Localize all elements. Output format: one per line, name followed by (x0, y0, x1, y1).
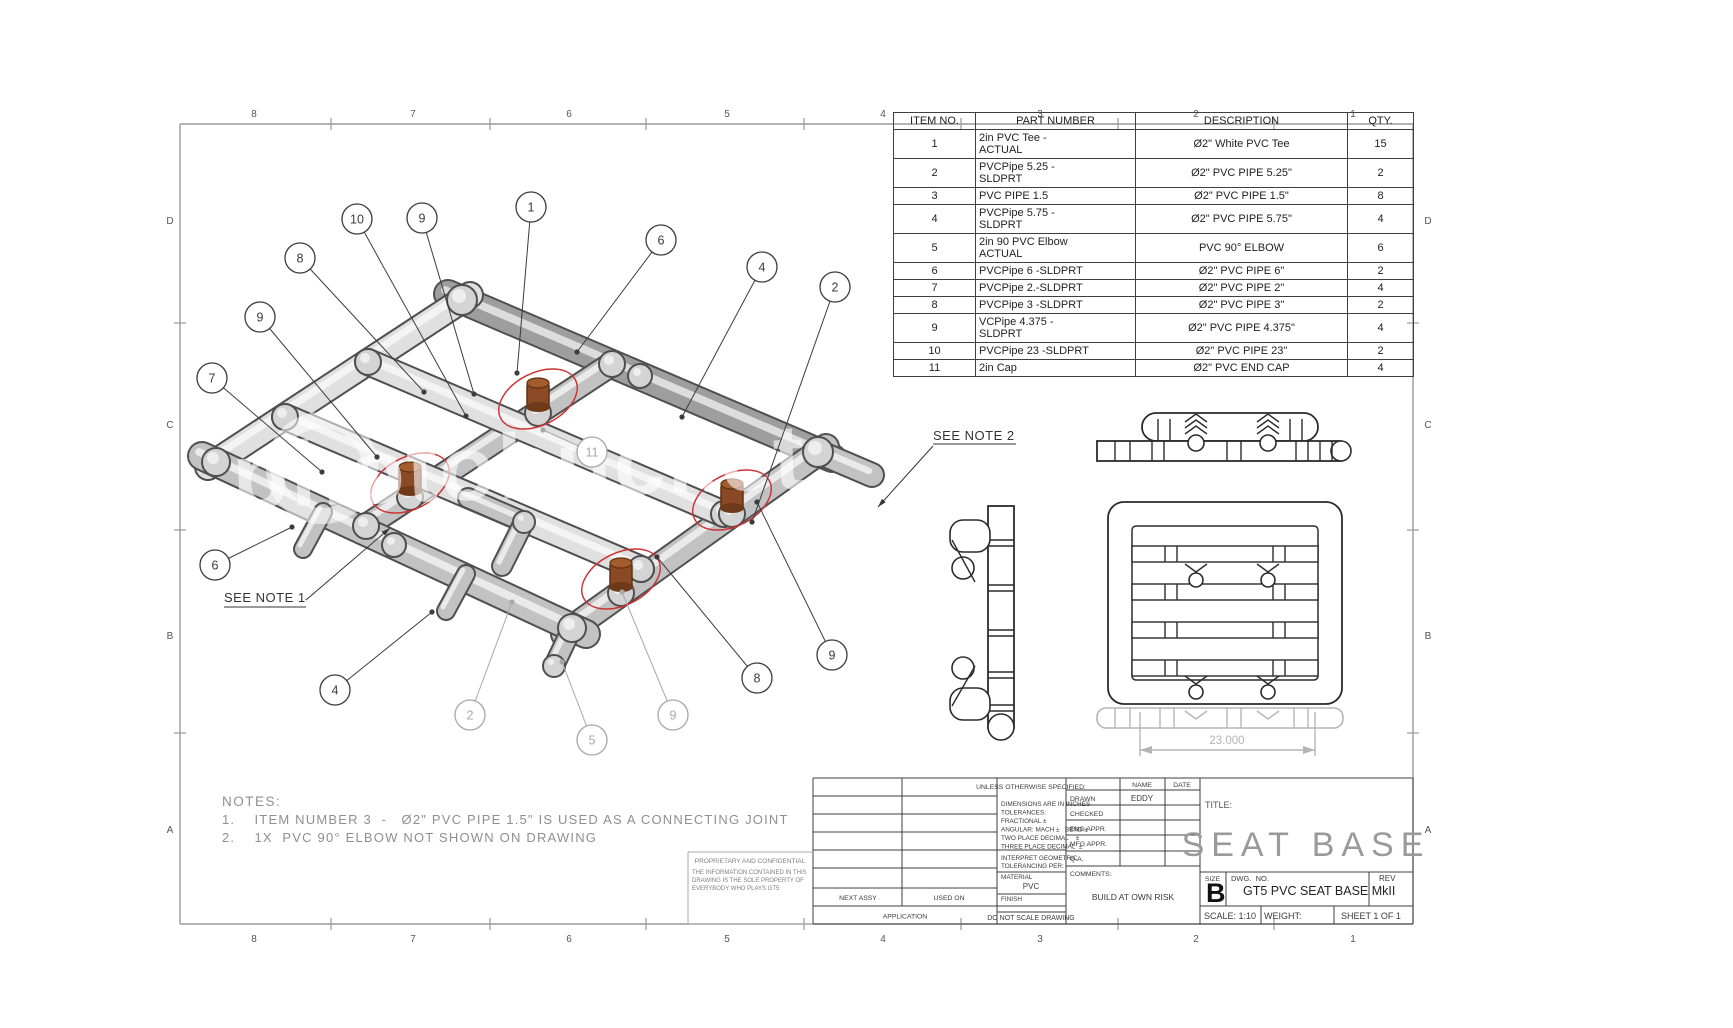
front-view-upper (1142, 413, 1318, 441)
balloon-leader (657, 557, 757, 678)
dim-arrow (1303, 746, 1315, 754)
tb-application: APPLICATION (883, 914, 928, 921)
bom-row: 3 PVC PIPE 1.5Ø2" PVC PIPE 1.5"8 (894, 188, 1414, 205)
bom-cell-item: 11 (894, 360, 976, 377)
fitting-highlight (633, 368, 641, 376)
bom-row: 8PVCPipe 3 -SLDPRTØ2" PVC PIPE 3"2 (894, 297, 1414, 314)
bom-cell-desc: Ø2" PVC PIPE 5.75" (1136, 205, 1348, 234)
bom-cell-qty: 2 (1348, 343, 1414, 360)
drawing-sheet: 8877665544332211DDCCBBAAphotobucket81091… (0, 0, 1733, 1028)
leader-dot (749, 519, 754, 524)
tb-weight: WEIGHT: (1264, 911, 1302, 921)
tb-heading: PROPRIETARY AND CONFIDENTIAL (695, 858, 806, 865)
bom-row: 112in CapØ2" PVC END CAP4 (894, 360, 1414, 377)
balloon-label: 1 (528, 201, 535, 215)
pipe-fitting (382, 533, 406, 557)
tb-1: TOLERANCES: (1001, 810, 1046, 817)
bom-cell-desc: Ø2" PVC END CAP (1136, 360, 1348, 377)
leader-dot (540, 427, 545, 432)
zone-label-bottom: 6 (566, 934, 572, 945)
tb-dwg-no: GT5 PVC SEAT BASE MkII (1243, 884, 1395, 898)
zone-label-bottom: 7 (410, 934, 416, 945)
balloon-label: 9 (257, 311, 264, 325)
brown-cap-top (610, 558, 632, 568)
fitting-highlight (207, 452, 219, 464)
ghost-chevron (1257, 711, 1279, 719)
fitting-highlight (387, 537, 395, 545)
bom-cell-part: PVCPipe 3 -SLDPRT (976, 297, 1136, 314)
leader-dot (319, 469, 324, 474)
tb-scale: SCALE: 1:10 (1204, 911, 1256, 921)
tb-1: CHECKED (1070, 811, 1103, 818)
zone-label-left: B (167, 631, 174, 642)
bom-row: 10PVCPipe 23 -SLDPRTØ2" PVC PIPE 23"2 (894, 343, 1414, 360)
bom-cell-part: 2in Cap (976, 360, 1136, 377)
brown-cap-base (526, 402, 550, 412)
bom-cell-qty: 6 (1348, 234, 1414, 263)
balloon-label: 4 (332, 684, 339, 698)
balloon-label: 7 (209, 372, 216, 386)
bom-table: ITEM NO.PART NUMBERDESCRIPTIONQTY.12in P… (893, 112, 1414, 377)
bom-cell-item: 2 (894, 159, 976, 188)
tb-2: ENG APPR. (1070, 826, 1107, 833)
bom-cell-desc: Ø2" PVC PIPE 4.375" (1136, 314, 1348, 343)
notes-heading: NOTES: (222, 794, 281, 809)
leader-dot (514, 370, 519, 375)
zone-label-right: C (1424, 420, 1431, 431)
fitting-highlight (452, 289, 466, 303)
see-note-2-label: SEE NOTE 2 (933, 428, 1015, 443)
ortho-circle (1189, 685, 1203, 699)
leader-dot (463, 413, 468, 418)
zone-label-top: 6 (566, 109, 572, 120)
front-view-endcap (1331, 441, 1351, 461)
tb-2: FRACTIONAL ± (1001, 818, 1047, 825)
tb-4: TWO PLACE DECIMAL ± (1001, 835, 1080, 842)
tb-unless: UNLESS OTHERWISE SPECIFIED: (976, 784, 1086, 791)
note-item: 2. 1X PVC 90° ELBOW NOT SHOWN ON DRAWING (222, 830, 597, 845)
bom-cell-desc: Ø2" PVC PIPE 2" (1136, 280, 1348, 297)
tb-interpret-2: TOLERANCING PER: (1001, 863, 1064, 870)
leader-dot (619, 589, 624, 594)
bom-cell-part: 2in 90 PVC Elbow ACTUAL (976, 234, 1136, 263)
bom-cell-qty: 4 (1348, 360, 1414, 377)
leader-dot (421, 389, 426, 394)
bom-cell-item: 9 (894, 314, 976, 343)
side-view-socket (952, 657, 974, 679)
bom-cell-qty: 8 (1348, 188, 1414, 205)
zone-label-top: 4 (880, 109, 886, 120)
tb-material-value: PVC (1023, 882, 1040, 891)
ghost-chevron (1185, 711, 1207, 719)
balloon-leader (335, 612, 432, 690)
balloon-leader (622, 592, 673, 715)
tb-used-on: USED ON (934, 895, 965, 902)
tb-interpret-1: INTERPRET GEOMETRIC (1001, 855, 1078, 862)
leader-dot (574, 349, 579, 354)
fitting-highlight (360, 353, 370, 363)
bom-cell-item: 4 (894, 205, 976, 234)
plan-view-bar (1132, 546, 1318, 562)
bom-row: 6PVCPipe 6 -SLDPRTØ2" PVC PIPE 6"2 (894, 263, 1414, 280)
tb-4: Q.A. (1070, 856, 1084, 863)
fitting-highlight (808, 441, 822, 455)
fitting-highlight (277, 408, 287, 418)
balloon-label: 8 (297, 252, 304, 266)
leader-dot (471, 391, 476, 396)
tb-1: DRAWING IS THE SOLE PROPERTY OF (692, 878, 804, 884)
bom-cell-item: 6 (894, 263, 976, 280)
bom-header-cell: ITEM NO. (894, 113, 976, 130)
zone-label-right: B (1425, 631, 1432, 642)
balloon-leader (682, 267, 762, 417)
balloon-label: 9 (419, 212, 426, 226)
balloon-label: 4 (759, 261, 766, 275)
bom-cell-qty: 2 (1348, 297, 1414, 314)
balloon-label: 9 (829, 649, 836, 663)
fitting-highlight (633, 560, 643, 570)
rect (1097, 708, 1343, 728)
bom-cell-part: PVCPipe 23 -SLDPRT (976, 343, 1136, 360)
tb-title-label: TITLE: (1205, 800, 1232, 810)
bom-cell-desc: Ø2" White PVC Tee (1136, 130, 1348, 159)
see-note-1-label: SEE NOTE 1 (224, 590, 306, 605)
tb-next-assy: NEXT ASSY (839, 895, 877, 902)
bom-cell-part: PVCPipe 6 -SLDPRT (976, 263, 1136, 280)
zone-label-top: 7 (410, 109, 416, 120)
zone-label-right: D (1424, 216, 1431, 227)
tb-2: EVERYBODY WHO PLAYS GT5 (692, 886, 780, 892)
zone-label-left: C (166, 420, 173, 431)
bom-row: 9VCPipe 4.375 - SLDPRTØ2" PVC PIPE 4.375… (894, 314, 1414, 343)
bom-cell-item: 10 (894, 343, 976, 360)
ortho-circle (1188, 435, 1204, 451)
balloon-leader (577, 240, 661, 352)
leader-dot (429, 609, 434, 614)
leader-dot (654, 554, 659, 559)
tb-sheet: SHEET 1 OF 1 (1341, 911, 1401, 921)
pipe-fitting (628, 364, 652, 388)
bom-cell-part: PVCPipe 5.25 - SLDPRT (976, 159, 1136, 188)
plan-view-bar (1132, 584, 1318, 600)
tb-3: MFG APPR. (1070, 841, 1107, 848)
zone-label-bottom: 2 (1193, 934, 1199, 945)
tb-material-label: MATERIAL (1001, 874, 1033, 881)
bom-cell-qty: 4 (1348, 280, 1414, 297)
bom-cell-item: 7 (894, 280, 976, 297)
bom-row: 2PVCPipe 5.25 - SLDPRTØ2" PVC PIPE 5.25"… (894, 159, 1414, 188)
fitting-highlight (604, 355, 614, 365)
bom-cell-item: 5 (894, 234, 976, 263)
drawing-canvas: 8877665544332211DDCCBBAAphotobucket81091… (0, 0, 1733, 1028)
tb-0: THE INFORMATION CONTAINED IN THIS (692, 870, 807, 876)
zone-label-left: D (166, 216, 173, 227)
bom-cell-desc: Ø2" PVC PIPE 1.5" (1136, 188, 1348, 205)
zone-label-bottom: 4 (880, 934, 886, 945)
ortho-circle (1261, 685, 1275, 699)
plan-view-bar (1132, 660, 1318, 676)
ortho-circle (1189, 573, 1203, 587)
bom-cell-desc: Ø2" PVC PIPE 5.25" (1136, 159, 1348, 188)
tb-title: SEAT BASE (1182, 826, 1431, 864)
tb-comments-value: BUILD AT OWN RISK (1092, 892, 1175, 902)
leader-dot (679, 414, 684, 419)
tb-comments-label: COMMENTS: (1070, 871, 1112, 878)
bom-cell-qty: 4 (1348, 314, 1414, 343)
dimension-value: 23.000 (1209, 735, 1244, 747)
bom-cell-desc: Ø2" PVC PIPE 3" (1136, 297, 1348, 314)
tb-0: DRAWN (1070, 796, 1096, 803)
bom-cell-qty: 2 (1348, 159, 1414, 188)
zone-label-bottom: 3 (1037, 934, 1043, 945)
zone-label-bottom: 1 (1350, 934, 1356, 945)
balloon-label: 2 (467, 709, 474, 723)
leader-dot (374, 454, 379, 459)
bom-cell-desc: Ø2" PVC PIPE 6" (1136, 263, 1348, 280)
ortho-circle (1260, 435, 1276, 451)
fitting-highlight (563, 618, 575, 630)
balloon-leader (757, 502, 832, 655)
bom-row: 12in PVC Tee - ACTUALØ2" White PVC Tee15 (894, 130, 1414, 159)
front-view-pipe (1097, 441, 1341, 461)
ortho-circle (1261, 573, 1275, 587)
dim-arrow (1140, 746, 1152, 754)
bom-cell-part: VCPipe 4.375 - SLDPRT (976, 314, 1136, 343)
bom-cell-qty: 2 (1348, 263, 1414, 280)
bom-cell-desc: PVC 90° ELBOW (1136, 234, 1348, 263)
note-item: 1. ITEM NUMBER 3 - Ø2" PVC PIPE 1.5" IS … (222, 812, 789, 827)
bom-cell-part: PVCPipe 5.75 - SLDPRT (976, 205, 1136, 234)
zone-label-top: 8 (251, 109, 257, 120)
zone-label-bottom: 8 (251, 934, 257, 945)
leader-dot (559, 659, 564, 664)
tb-date-header: DATE (1173, 782, 1191, 789)
balloon-label: 9 (670, 709, 677, 723)
bom-cell-qty: 15 (1348, 130, 1414, 159)
bom-cell-item: 3 (894, 188, 976, 205)
bom-cell-part: PVCPipe 2.-SLDPRT (976, 280, 1136, 297)
balloon-label: 11 (586, 446, 599, 460)
bom-cell-item: 1 (894, 130, 976, 159)
side-view-elbow-bottom (950, 688, 990, 720)
tb-do-not-scale: DO NOT SCALE DRAWING (987, 915, 1075, 922)
tb-rev-label: REV (1379, 874, 1396, 883)
bom-cell-part: 2in PVC Tee - ACTUAL (976, 130, 1136, 159)
bom-header-cell: DESCRIPTION (1136, 113, 1348, 130)
balloon-label: 6 (212, 559, 219, 573)
balloon-label: 8 (754, 672, 761, 686)
bom-cell-desc: Ø2" PVC PIPE 23" (1136, 343, 1348, 360)
brown-cap-top (527, 378, 549, 388)
bom-cell-qty: 4 (1348, 205, 1414, 234)
side-view-foot (988, 714, 1014, 740)
tb-name-header: NAME (1132, 782, 1152, 789)
zone-label-left: A (167, 825, 174, 836)
pipe-fitting (543, 655, 565, 677)
note-leader (878, 446, 933, 507)
bom-header-cell: QTY. (1348, 113, 1414, 130)
balloon-leader (517, 207, 531, 373)
balloon-label: 6 (658, 234, 665, 248)
balloon-leader (470, 602, 512, 715)
bom-cell-part: PVC PIPE 1.5 (976, 188, 1136, 205)
leader-dot (289, 524, 294, 529)
tb-drawn-name: EDDY (1131, 794, 1154, 803)
tb-dwg-label: DWG. NO. (1231, 874, 1269, 883)
bom-row: 52in 90 PVC Elbow ACTUALPVC 90° ELBOW6 (894, 234, 1414, 263)
fitting-highlight (548, 659, 554, 665)
bom-header-cell: PART NUMBER (976, 113, 1136, 130)
balloon-label: 2 (832, 281, 839, 295)
zone-label-top: 5 (724, 109, 730, 120)
bom-cell-item: 8 (894, 297, 976, 314)
bom-row: 7PVCPipe 2.-SLDPRTØ2" PVC PIPE 2"4 (894, 280, 1414, 297)
balloon-label: 5 (589, 734, 596, 748)
bom-header-row: ITEM NO.PART NUMBERDESCRIPTIONQTY. (894, 113, 1414, 130)
tb-size: B (1206, 878, 1226, 908)
bom-row: 4PVCPipe 5.75 - SLDPRTØ2" PVC PIPE 5.75"… (894, 205, 1414, 234)
tb-finish-label: FINISH (1001, 896, 1022, 903)
balloon-label: 10 (350, 213, 364, 227)
plan-view-bar (1132, 622, 1318, 638)
leader-dot (509, 599, 514, 604)
leader-dot (754, 499, 759, 504)
zone-label-bottom: 5 (724, 934, 730, 945)
